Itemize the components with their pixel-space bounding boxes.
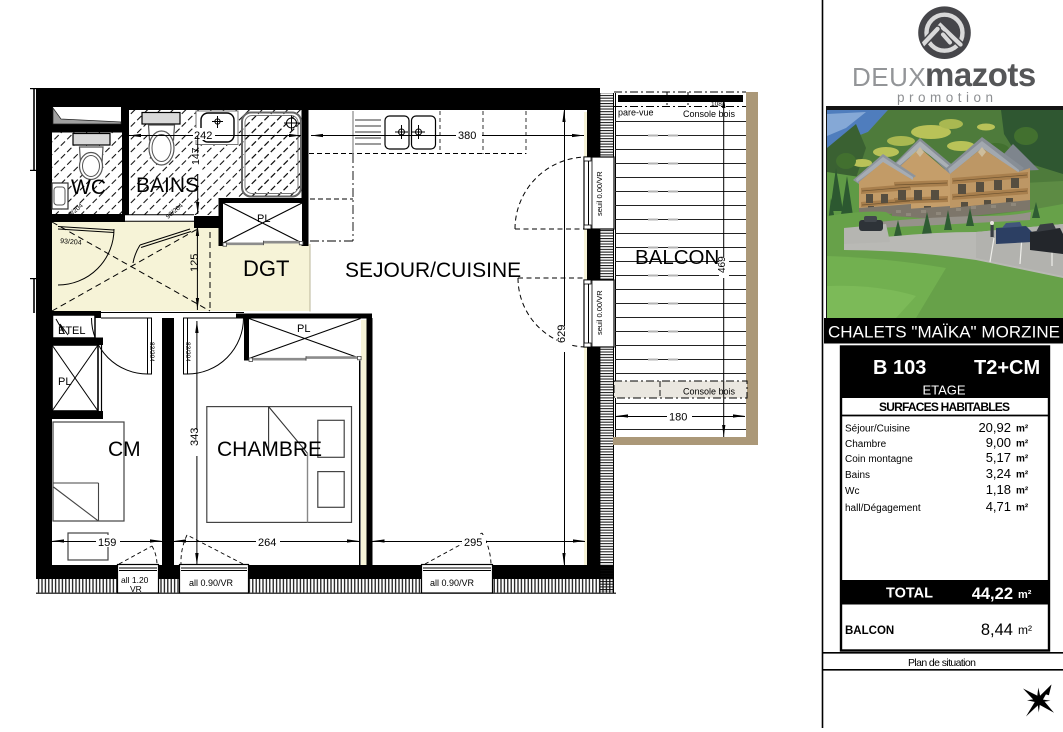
svg-text:CHALETS "MAÏKA" MORZINE: CHALETS "MAÏKA" MORZINE [828,323,1060,342]
svg-text:1,18: 1,18 [986,482,1011,497]
svg-text:SURFACES HABITABLES: SURFACES HABITABLES [879,400,1010,414]
svg-text:TOTAL: TOTAL [886,586,933,602]
svg-text:9,00: 9,00 [986,435,1011,450]
svg-text:20,92: 20,92 [978,420,1011,435]
svg-text:Séjour/Cuisine: Séjour/Cuisine [845,424,910,435]
svg-text:44,22: 44,22 [972,585,1013,603]
svg-text:m²: m² [1016,486,1029,497]
svg-text:m²: m² [1016,454,1029,465]
svg-text:m²: m² [1016,424,1029,435]
svg-text:m²: m² [1016,503,1029,514]
svg-text:T2+CM: T2+CM [974,357,1040,379]
svg-text:m²: m² [1018,623,1032,637]
svg-text:8,44: 8,44 [981,621,1013,639]
svg-text:BALCON: BALCON [845,625,894,637]
svg-text:Plan de situation: Plan de situation [908,657,976,669]
svg-text:Coin montagne: Coin montagne [845,454,913,465]
svg-text:m²: m² [1016,439,1029,450]
svg-text:Wc: Wc [845,486,859,497]
svg-text:5,17: 5,17 [986,450,1011,465]
svg-text:B 103: B 103 [873,357,926,379]
svg-text:3,24: 3,24 [986,466,1011,481]
svg-text:Bains: Bains [845,470,870,481]
svg-text:Chambre: Chambre [845,439,887,450]
svg-text:hall/Dégagement: hall/Dégagement [845,503,921,514]
svg-text:4,71: 4,71 [986,499,1011,514]
svg-text:m²: m² [1018,589,1032,601]
svg-text:m²: m² [1016,470,1029,481]
svg-text:ETAGE: ETAGE [922,383,965,398]
